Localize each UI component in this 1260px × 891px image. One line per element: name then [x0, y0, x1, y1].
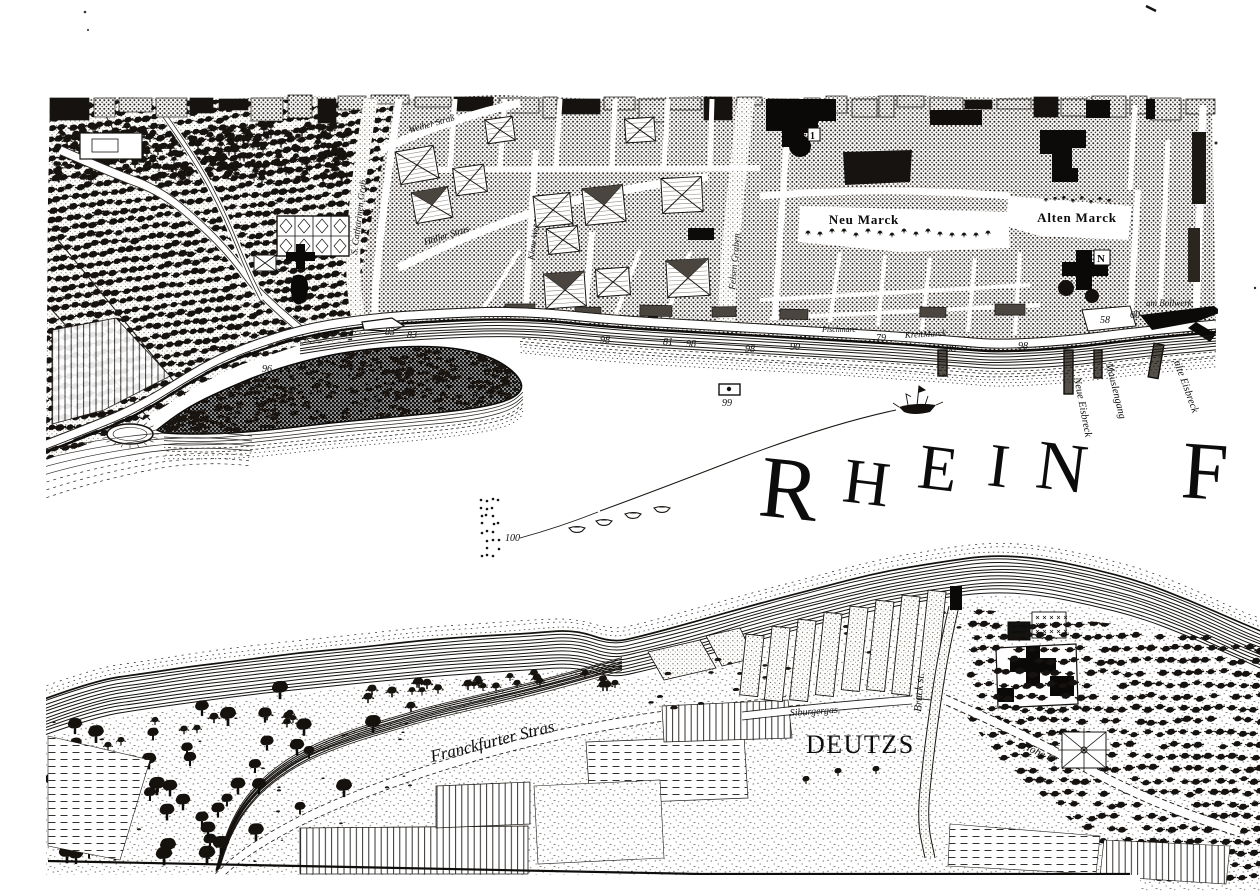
svg-text:N: N [1097, 253, 1105, 265]
svg-text:98: 98 [1018, 341, 1028, 352]
svg-text:58: 58 [1100, 315, 1110, 326]
svg-text:DEUTZS: DEUTZS [806, 730, 915, 759]
svg-text:79: 79 [876, 333, 886, 344]
svg-text:Alten Marck: Alten Marck [1037, 210, 1117, 225]
svg-text:am Bollwerk: am Bollwerk [1146, 298, 1193, 308]
svg-text:R: R [755, 438, 824, 541]
svg-text:100: 100 [505, 533, 520, 544]
svg-text:Neu Marck: Neu Marck [829, 212, 899, 227]
svg-text:Pischmarc: Pischmarc [821, 325, 856, 334]
svg-text:60: 60 [1130, 310, 1140, 321]
svg-text:1: 1 [810, 131, 815, 142]
svg-text:F: F [1179, 424, 1231, 518]
svg-text:N: N [1032, 426, 1092, 509]
svg-text:81: 81 [663, 337, 673, 348]
svg-text:H: H [839, 444, 894, 520]
svg-text:99: 99 [722, 398, 732, 409]
